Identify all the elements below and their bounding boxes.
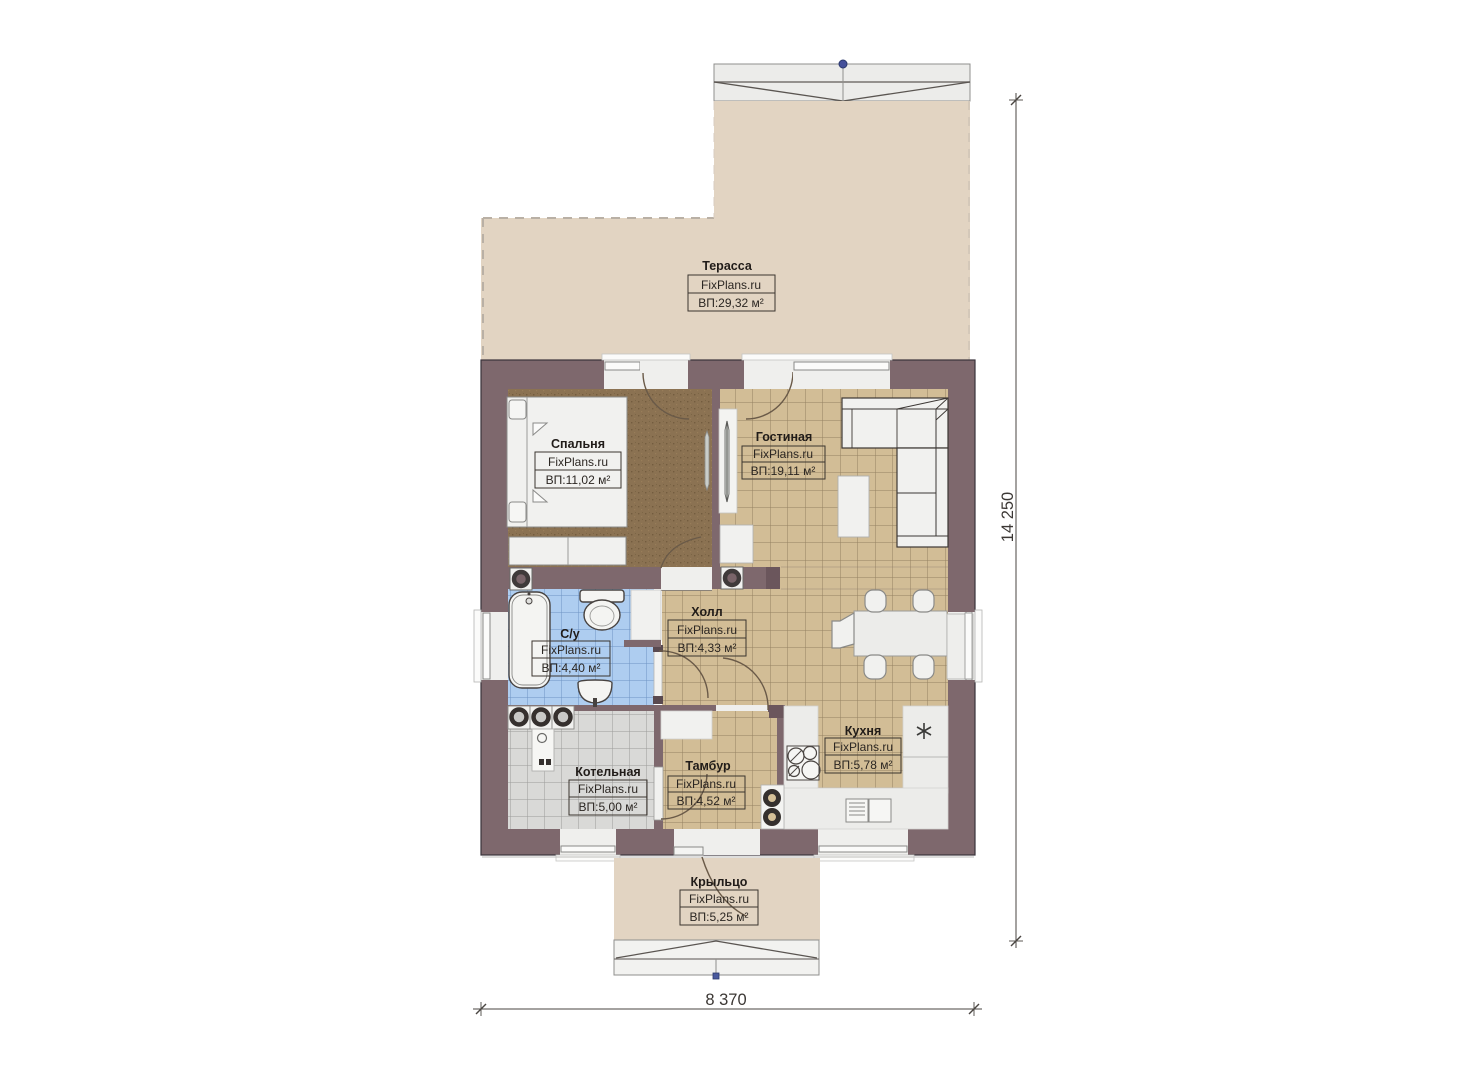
svg-text:FixPlans.ru: FixPlans.ru (677, 623, 737, 637)
svg-text:Холл: Холл (691, 605, 722, 619)
svg-text:Кухня: Кухня (845, 724, 882, 738)
svg-text:8 370: 8 370 (705, 991, 746, 1009)
svg-text:FixPlans.ru: FixPlans.ru (701, 278, 761, 292)
svg-text:FixPlans.ru: FixPlans.ru (578, 782, 638, 796)
svg-text:Крыльцо: Крыльцо (691, 875, 748, 889)
svg-text:ВП:5,00 м²: ВП:5,00 м² (579, 800, 638, 814)
svg-text:FixPlans.ru: FixPlans.ru (753, 447, 813, 461)
svg-text:ВП:4,33 м²: ВП:4,33 м² (678, 641, 737, 655)
svg-text:ВП:4,52 м²: ВП:4,52 м² (677, 794, 736, 808)
svg-text:Тамбур: Тамбур (685, 759, 731, 773)
svg-text:ВП:19,11 м²: ВП:19,11 м² (751, 464, 816, 478)
svg-text:FixPlans.ru: FixPlans.ru (541, 643, 601, 657)
svg-text:С/у: С/у (560, 627, 580, 641)
svg-text:14 250: 14 250 (999, 492, 1017, 542)
svg-text:FixPlans.ru: FixPlans.ru (833, 740, 893, 754)
svg-text:Гостиная: Гостиная (756, 430, 813, 444)
svg-text:ВП:29,32 м²: ВП:29,32 м² (698, 296, 764, 310)
svg-text:FixPlans.ru: FixPlans.ru (676, 777, 736, 791)
svg-text:FixPlans.ru: FixPlans.ru (689, 892, 749, 906)
svg-text:ВП:5,25 м²: ВП:5,25 м² (690, 910, 749, 924)
svg-text:FixPlans.ru: FixPlans.ru (548, 455, 608, 469)
svg-text:Терасса: Терасса (702, 259, 753, 273)
svg-text:Котельная: Котельная (575, 765, 640, 779)
svg-text:ВП:4,40 м²: ВП:4,40 м² (542, 661, 601, 675)
svg-text:Спальня: Спальня (551, 437, 605, 451)
svg-text:ВП:5,78 м²: ВП:5,78 м² (834, 758, 893, 772)
svg-text:ВП:11,02 м²: ВП:11,02 м² (546, 473, 611, 487)
